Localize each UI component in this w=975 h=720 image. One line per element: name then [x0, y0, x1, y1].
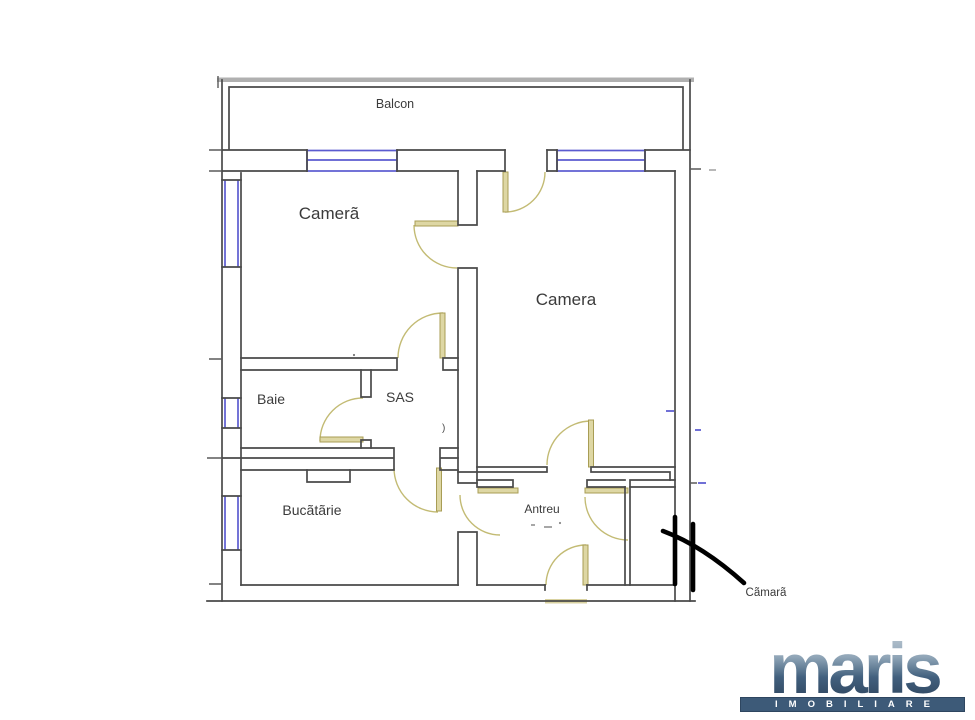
camara-door-arc — [585, 497, 628, 540]
camera-left-door-leaf — [415, 221, 458, 226]
room-label-camera-right: Camera — [536, 290, 596, 310]
camera-antreu-door-leaf — [589, 420, 594, 467]
logo-brand-text: maris — [740, 640, 968, 700]
camara-annotation-marks — [663, 517, 744, 590]
logo-subtitle-text: IMOBILIARE — [764, 697, 941, 712]
floor-plan-page: Balcon Camerã Camera Baie SAS Bucãtãrie … — [0, 0, 975, 720]
speck — [353, 354, 355, 356]
room-label-baie: Baie — [257, 391, 285, 407]
balcony-door-leaf — [503, 172, 508, 212]
maris-logo: maris IMOBILIARE — [740, 640, 968, 712]
antreu-right-door-leaf — [585, 488, 628, 493]
sas-bottom-door-leaf — [437, 468, 442, 511]
balcony-inner-outline — [229, 87, 683, 149]
balcony-outer-edge — [217, 78, 694, 83]
sas-top-door-leaf — [440, 313, 445, 358]
room-label-sas: SAS — [386, 389, 414, 405]
speck — [559, 522, 561, 524]
entrance-door-leaf — [583, 545, 588, 585]
windows — [225, 151, 645, 551]
scan-artifact-paren: ) — [442, 423, 445, 434]
door-arcs — [320, 172, 628, 585]
room-label-balcon: Balcon — [376, 97, 414, 111]
entrance-door-arc — [546, 545, 586, 585]
antreu-left-door-leaf — [478, 488, 518, 493]
blue-ticks — [666, 411, 706, 483]
baie-door-arc — [320, 398, 363, 441]
sas-top-door-arc — [398, 313, 443, 358]
room-label-camera-left: Camerã — [299, 204, 359, 224]
camera-antreu-door-arc — [547, 421, 591, 465]
baie-door-leaf — [320, 437, 363, 442]
room-label-camara: Cãmarã — [746, 587, 787, 599]
room-label-bucatarie: Bucãtãrie — [282, 502, 341, 518]
sas-bottom-door-arc — [394, 468, 438, 512]
floor-plan-drawing — [0, 0, 975, 720]
bucatarie-door-arc — [460, 495, 500, 535]
room-label-antreu: Antreu — [524, 502, 559, 516]
camera-left-door-arc — [414, 225, 457, 268]
door-leaves — [320, 172, 628, 604]
logo-subtitle-bar: IMOBILIARE — [740, 697, 965, 712]
balcony-door-arc — [505, 172, 545, 212]
